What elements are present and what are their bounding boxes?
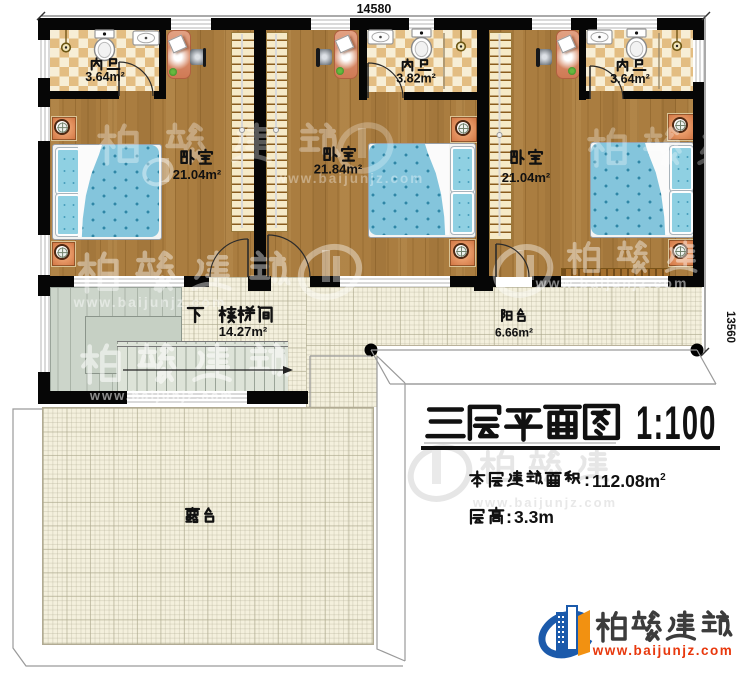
svg-text:21.04m²: 21.04m² — [502, 170, 551, 185]
svg-text::: : — [584, 470, 590, 490]
svg-text:3.64m²: 3.64m² — [85, 70, 125, 84]
svg-text:3.64m²: 3.64m² — [610, 72, 650, 86]
svg-text:14580: 14580 — [357, 2, 392, 16]
svg-text:13560: 13560 — [724, 311, 736, 343]
svg-text:1:100: 1:100 — [636, 398, 717, 450]
svg-text:112.08m2: 112.08m2 — [592, 471, 666, 491]
svg-text:14.27m²: 14.27m² — [219, 324, 268, 339]
svg-text:www.baijunjz.com: www.baijunjz.com — [592, 643, 734, 658]
svg-text:www.baijunjz.com: www.baijunjz.com — [89, 388, 234, 403]
svg-text:6.66m²: 6.66m² — [495, 326, 533, 340]
svg-text:3.3m: 3.3m — [514, 507, 554, 527]
svg-text:3.82m²: 3.82m² — [396, 72, 436, 86]
svg-text:www.baijunjz.com: www.baijunjz.com — [535, 275, 689, 291]
svg-text::: : — [506, 507, 512, 527]
svg-text:21.84m²: 21.84m² — [314, 162, 363, 177]
svg-text:21.04m²: 21.04m² — [173, 167, 222, 182]
